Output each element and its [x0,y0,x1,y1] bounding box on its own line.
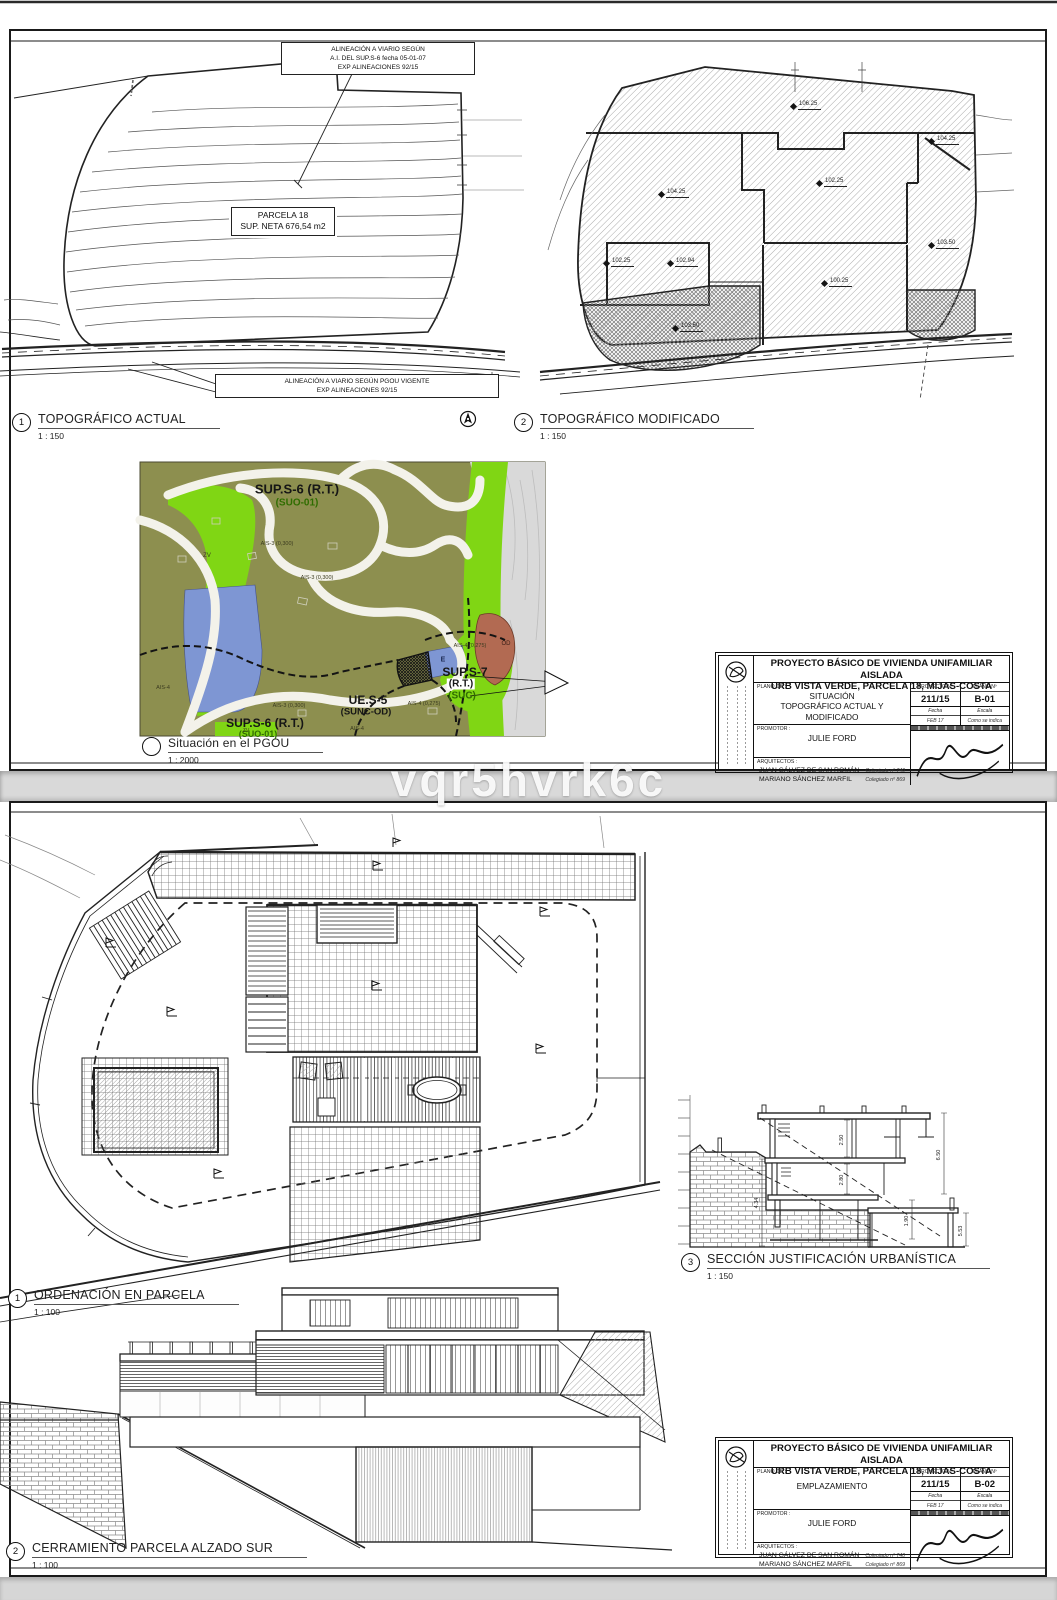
pgou-label-ais3: AIS-3 (0,300) [301,575,334,581]
escala-label: Escala [961,1492,1010,1501]
arquitecto-1: JUAN GÁLVEZ DE SAN ROMÁN [759,1551,859,1560]
promotor-value: JULIE FORD [757,733,907,743]
promotor-label: PROMOTOR : [757,1511,790,1517]
svg-text:4.34: 4.34 [754,1198,760,1209]
pgou-label-sup-s6: SUP.S-6 (R.T.) [255,482,339,497]
architectural-plan-document: 2.50 2.80 6.50 1.90 5.53 4.34 [0,0,1057,1600]
escala-value: Como se indica [961,716,1010,725]
signature-icon [911,1516,1009,1570]
proyecto-num-value: 211/15 [911,692,960,706]
plano-de-cell: PLANO DE : SITUACIÓN TOPOGRÁFICO ACTUAL … [754,683,910,725]
project-title: PROYECTO BÁSICO DE VIVIENDA UNIFAMILIAR … [754,656,1009,683]
plano-de-value: EMPLAZAMIENTO [757,1476,907,1491]
view-number-badge: 3 [681,1253,700,1272]
project-title-line1: PROYECTO BÁSICO DE VIVIENDA UNIFAMILIAR … [754,658,1009,681]
escala-cell: Escala Como se indica [960,707,1010,725]
spot-elevation: 104.25 [659,189,689,198]
view-label-topo-modificado: 2 TOPOGRÁFICO MODIFICADO 1 : 150 [514,412,754,441]
spot-elevation: 103.50 [673,323,703,332]
promotor-label: PROMOTOR : [757,726,790,732]
arquitectos-cell: ARQUITECTOS : JUAN GÁLVEZ DE SAN ROMÁNCo… [754,1543,910,1570]
promotor-value: JULIE FORD [757,1518,907,1528]
project-title: PROYECTO BÁSICO DE VIVIENDA UNIFAMILIAR … [754,1441,1009,1468]
view-number-badge: 1 [8,1289,27,1308]
section-drawing: 2.50 2.80 6.50 1.90 5.53 4.34 [678,1095,969,1247]
view-label-cerramiento: 2 CERRAMIENTO PARCELA ALZADO SUR 1 : 100 [6,1541,307,1570]
spot-elevation: 102.94 [668,258,698,267]
proyecto-num-label: PROYECTO Nº [911,683,960,692]
pgou-label-suc: (SUC) [448,691,476,702]
pgou-label-ais4: AIS-4 (0,275) [454,643,487,649]
project-title-line1: PROYECTO BÁSICO DE VIVIENDA UNIFAMILIAR … [754,1443,1009,1466]
fecha-value: FEB 17 [911,1501,960,1510]
pgou-label-ais3: AIS-3 (0,300) [273,703,306,709]
pgou-label-suo01: (SUO-01) [276,498,319,509]
colegiado-2: Colegiado nº 869 [865,1562,905,1569]
view-label-ordenacion: 1 ORDENACIÓN EN PARCELA 1 : 100 [8,1288,239,1317]
view-scale: 1 : 150 [540,431,754,441]
view-scale: 1 : 100 [34,1307,239,1317]
fecha-label: Fecha [911,1492,960,1501]
plano-num-cell: PLANO Nº B-01 [960,683,1010,706]
architect-stamp-icon [723,1444,749,1470]
view-label-topo-actual: 1 TOPOGRÁFICO ACTUAL 1 : 150 [12,412,220,441]
view-title: TOPOGRÁFICO MODIFICADO [540,412,754,429]
promotor-cell: PROMOTOR : JULIE FORD [754,1510,910,1543]
stamp-microtext [737,1471,738,1550]
pgou-label-sup-s6-bottom: SUP.S-6 (R.T.) [226,716,304,730]
alignment-callout-bottom: ALINEACIÓN A VIARIO SEGÚN PGOU VIGENTE E… [215,374,499,398]
view-title: SECCIÓN JUSTIFICACIÓN URBANÍSTICA [707,1252,990,1269]
view-scale: 1 : 100 [32,1560,307,1570]
spot-elevation: 106.25 [791,101,821,110]
pgou-label-ais4: AIS-4 (0,275) [408,701,441,707]
pgou-label-od: OD [502,641,511,647]
proyecto-num-label: PROYECTO Nº [911,1468,960,1477]
pgou-label-rt: (R.T.) [447,679,475,690]
plano-num-label: PLANO Nº [961,683,1010,692]
escala-label: Escala [961,707,1010,716]
plano-num-label: PLANO Nº [961,1468,1010,1477]
plano-de-label: PLANO DE : [757,1469,786,1475]
stamp-microtext [745,1471,746,1550]
view-scale: 1 : 150 [38,431,220,441]
pgou-label-zv: ZV [203,553,211,559]
fecha-label: Fecha [911,707,960,716]
plano-de-value: SITUACIÓN TOPOGRÁFICO ACTUAL Y MODIFICAD… [757,691,907,722]
plano-de-cell: PLANO DE : EMPLAZAMIENTO [754,1468,910,1510]
plano-de-label: PLANO DE : [757,684,786,690]
view-number-badge: 2 [514,413,533,432]
svg-text:2.50: 2.50 [839,1135,845,1146]
view-title: CERRAMIENTO PARCELA ALZADO SUR [32,1541,307,1558]
pgou-label-ais4: AIS-4 [156,685,170,691]
title-block-stamp-strip [719,1441,754,1554]
pgou-label-sup-s7: SUP.S-7 [442,665,487,679]
view-title: TOPOGRÁFICO ACTUAL [38,412,220,429]
watermark-text: vqr5hvrk6c [0,753,1057,807]
plano-num-value: B-01 [961,692,1010,706]
proyecto-num-cell: PROYECTO Nº 211/15 [911,1468,960,1491]
view-label-seccion: 3 SECCIÓN JUSTIFICACIÓN URBANÍSTICA 1 : … [681,1252,990,1281]
escala-value: Como se indica [961,1501,1010,1510]
alignment-callout-top: ALINEACIÓN A VIARIO SEGÚN A.I. DEL SUP.S… [281,42,475,75]
spot-elevation: 100.25 [822,278,852,287]
view-scale: 1 : 150 [707,1271,990,1281]
fecha-cell: Fecha FEB 17 [911,707,960,725]
pg-label-zv-bottom: ZV [243,728,249,734]
pgou-label-ues5: UE.S-5 [349,693,388,707]
spot-elevation: 103.50 [929,240,959,249]
view-number-badge: 2 [6,1542,25,1561]
spot-elevation: 102.25 [817,178,847,187]
svg-text:6.50: 6.50 [936,1150,942,1161]
pgou-label-ais3: AIS-3 (0,300) [261,541,294,547]
view-title: ORDENACIÓN EN PARCELA [34,1288,239,1305]
fecha-cell: Fecha FEB 17 [911,1492,960,1510]
pgou-label-ais4: AIS-4 [350,726,364,732]
spot-elevation: 104.25 [929,136,959,145]
svg-text:2.80: 2.80 [839,1175,845,1186]
parcel-area-box: PARCELA 18 SUP. NETA 676,54 m2 [231,207,335,236]
pgou-label-e: E [441,657,446,664]
proyecto-num-cell: PROYECTO Nº 211/15 [911,683,960,706]
escala-cell: Escala Como se indica [960,1492,1010,1510]
signature-area [911,1516,1009,1570]
arquitecto-2: MARIANO SÁNCHEZ MARFIL [759,1560,852,1569]
colegiado-1: Colegiado nº 740 [865,1553,905,1560]
spot-elevation: 102.25 [604,258,634,267]
site-plan-drawing [0,814,660,1322]
fecha-value: FEB 17 [911,716,960,725]
elevation-drawing [0,1288,672,1550]
svg-text:1.90: 1.90 [904,1216,910,1227]
arquitectos-label: ARQUITECTOS : [757,1544,797,1550]
north-arrow-icon [461,412,476,427]
title-block-b02: PROYECTO BÁSICO DE VIVIENDA UNIFAMILIAR … [718,1440,1010,1555]
plano-num-value: B-02 [961,1477,1010,1491]
proyecto-num-value: 211/15 [911,1477,960,1491]
architect-stamp-icon [723,659,749,685]
topo-modificado-drawing [540,62,1014,400]
stamp-microtext [727,1471,728,1550]
plano-num-cell: PLANO Nº B-02 [960,1468,1010,1491]
svg-text:5.53: 5.53 [958,1226,964,1237]
view-number-badge: 1 [12,413,31,432]
pgou-label-sunc-od: (SUNC-OD) [341,707,392,718]
